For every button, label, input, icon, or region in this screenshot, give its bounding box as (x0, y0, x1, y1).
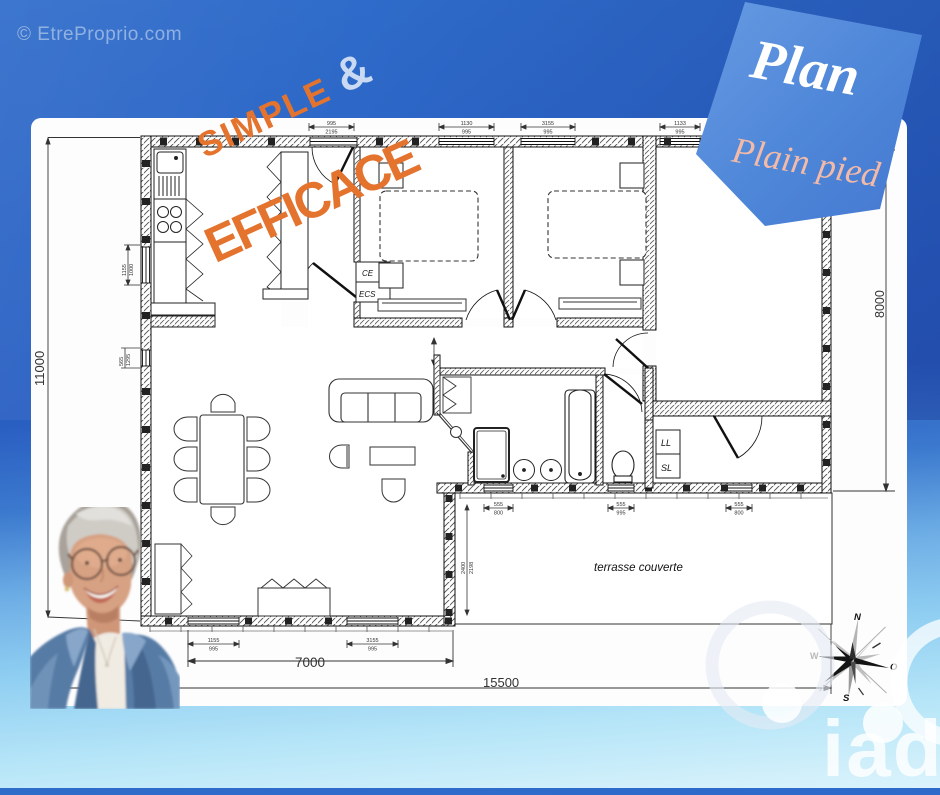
svg-text:800: 800 (494, 511, 503, 517)
svg-text:15500: 15500 (483, 675, 519, 690)
svg-text:8000: 8000 (873, 290, 887, 318)
svg-text:SL: SL (661, 463, 672, 473)
svg-text:995: 995 (616, 511, 625, 517)
svg-text:995: 995 (327, 121, 336, 127)
svg-text:2195: 2195 (325, 130, 337, 136)
svg-text:11000: 11000 (32, 351, 47, 386)
svg-text:555: 555 (494, 502, 503, 508)
svg-text:995: 995 (543, 130, 552, 136)
svg-text:1000: 1000 (129, 264, 135, 276)
svg-text:ECS: ECS (359, 290, 376, 299)
svg-text:1155: 1155 (122, 264, 128, 276)
svg-text:995: 995 (209, 647, 218, 653)
svg-text:3155: 3155 (542, 121, 554, 127)
svg-text:7000: 7000 (295, 655, 325, 670)
svg-text:LL: LL (661, 438, 671, 448)
svg-text:555: 555 (616, 502, 625, 508)
svg-text:1155: 1155 (208, 638, 220, 644)
svg-text:995: 995 (368, 647, 377, 653)
svg-text:3155: 3155 (366, 638, 378, 644)
svg-text:995: 995 (675, 130, 684, 136)
svg-text:terrasse couverte: terrasse couverte (594, 562, 683, 574)
svg-text:1130: 1130 (461, 121, 473, 127)
svg-text:995: 995 (462, 130, 471, 136)
svg-text:2198: 2198 (469, 562, 475, 574)
svg-text:2400: 2400 (461, 562, 467, 574)
svg-text:1133: 1133 (674, 121, 686, 127)
svg-text:565: 565 (119, 357, 125, 366)
svg-text:CE: CE (362, 269, 374, 278)
svg-text:1295: 1295 (126, 354, 132, 366)
